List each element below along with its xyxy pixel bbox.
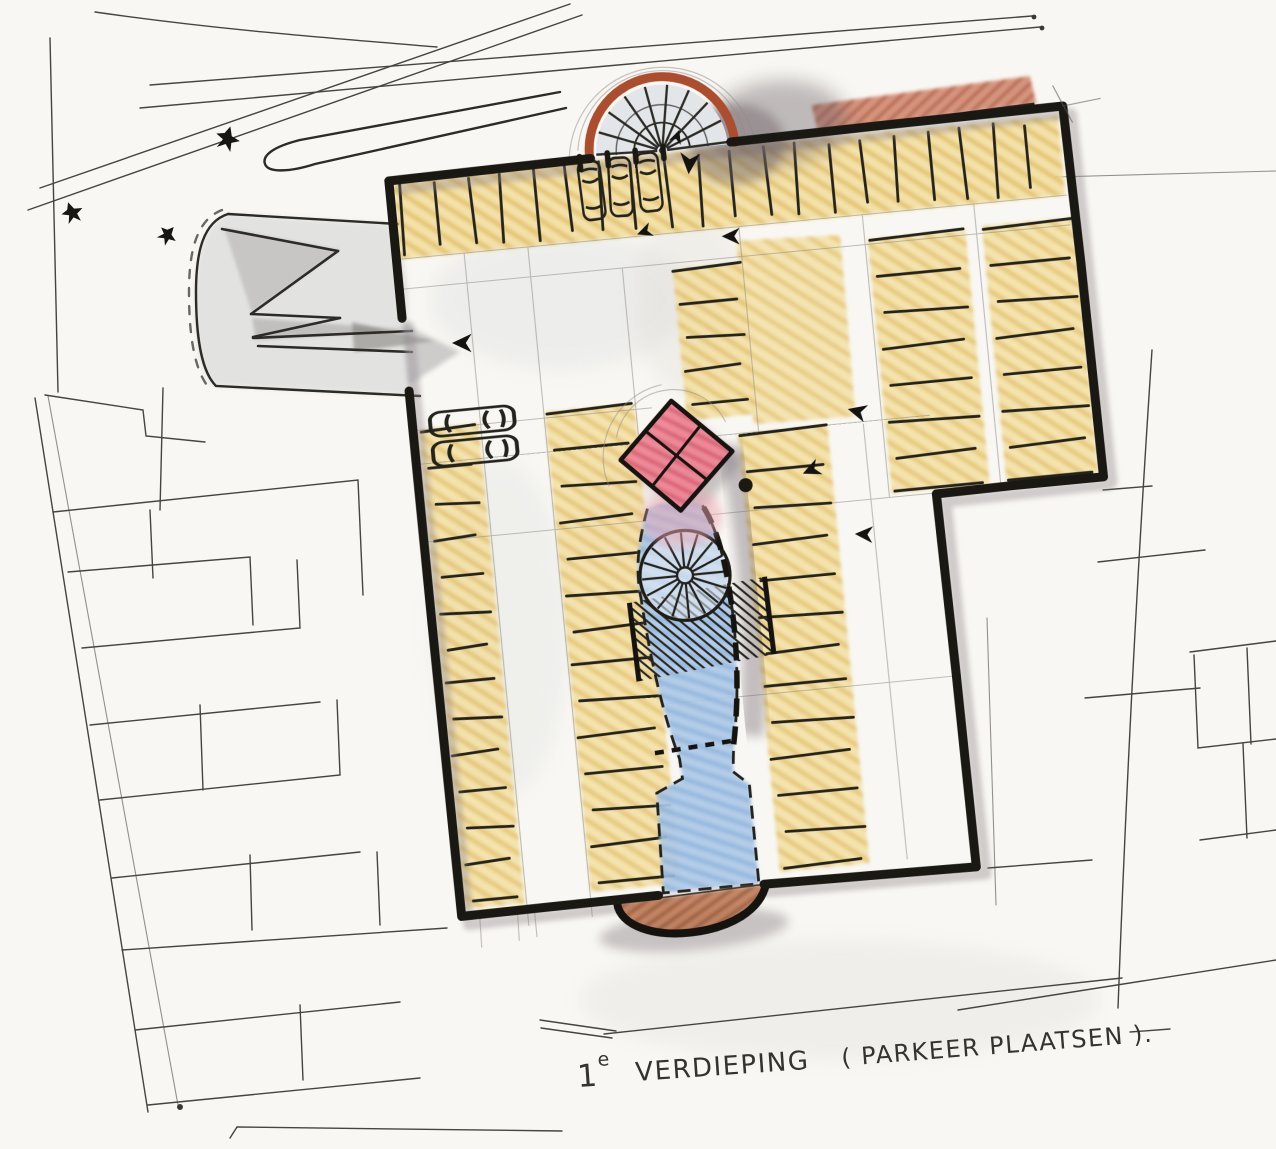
caption-floor-number: 1 xyxy=(576,1058,600,1095)
floor-plan-drawing: 1 e VERDIEPING ( PARKEER PLAATSEN ). xyxy=(0,0,1276,1149)
caption-floor-ordinal: e xyxy=(597,1048,612,1071)
sketch-sheet: 1 e VERDIEPING ( PARKEER PLAATSEN ). xyxy=(0,0,1276,1149)
